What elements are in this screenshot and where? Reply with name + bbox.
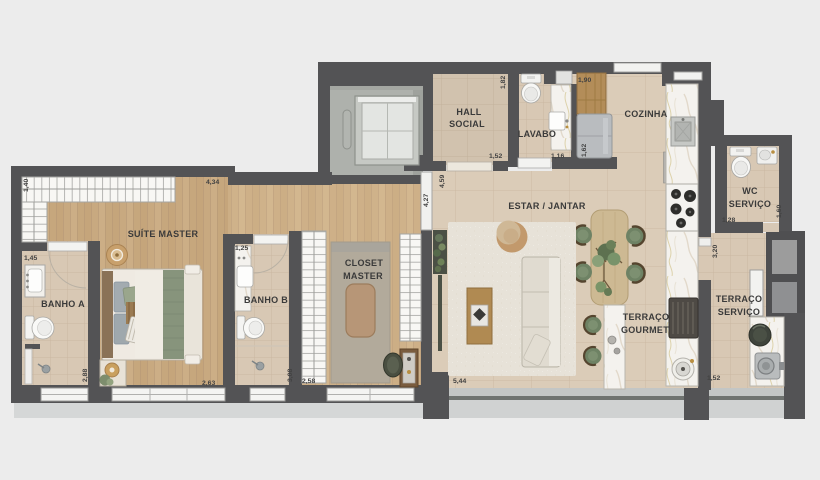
svg-text:3,20: 3,20 [712, 245, 719, 258]
svg-text:1,90: 1,90 [578, 77, 591, 84]
svg-text:ESTAR / JANTAR: ESTAR / JANTAR [508, 201, 586, 211]
svg-text:COZINHA: COZINHA [624, 109, 667, 119]
svg-text:2,88: 2,88 [82, 369, 89, 382]
svg-text:1,40: 1,40 [23, 179, 30, 192]
svg-text:CLOSET: CLOSET [345, 258, 384, 268]
svg-text:1,60: 1,60 [776, 205, 783, 218]
svg-text:WC: WC [742, 186, 758, 196]
svg-text:1,25: 1,25 [235, 245, 248, 252]
svg-text:TERRAÇO: TERRAÇO [623, 312, 670, 322]
svg-text:4,34: 4,34 [206, 179, 219, 186]
svg-text:1,62: 1,62 [581, 144, 588, 157]
svg-text:2,58: 2,58 [302, 378, 315, 385]
svg-text:BANHO B: BANHO B [244, 295, 288, 305]
svg-text:1,82: 1,82 [500, 76, 507, 89]
svg-text:SERVIÇO: SERVIÇO [729, 199, 771, 209]
svg-text:4,27: 4,27 [423, 194, 430, 207]
svg-text:5,44: 5,44 [453, 378, 466, 385]
svg-text:SOCIAL: SOCIAL [449, 119, 485, 129]
svg-text:TERRAÇO: TERRAÇO [716, 294, 763, 304]
svg-text:1,52: 1,52 [707, 375, 720, 382]
svg-text:1,45: 1,45 [24, 255, 37, 262]
svg-text:1,28: 1,28 [722, 217, 735, 224]
svg-text:HALL: HALL [456, 107, 481, 117]
svg-text:SERVIÇO: SERVIÇO [718, 307, 760, 317]
svg-text:3,08: 3,08 [287, 369, 294, 382]
svg-text:LAVABO: LAVABO [518, 129, 556, 139]
svg-text:1,16: 1,16 [551, 153, 564, 160]
svg-text:SUÍTE MASTER: SUÍTE MASTER [128, 229, 199, 239]
svg-text:MASTER: MASTER [343, 271, 383, 281]
svg-text:1,52: 1,52 [489, 153, 502, 160]
svg-text:2,63: 2,63 [202, 380, 215, 387]
svg-text:4,59: 4,59 [439, 175, 446, 188]
svg-text:BANHO A: BANHO A [41, 299, 85, 309]
svg-text:GOURMET: GOURMET [621, 325, 669, 335]
